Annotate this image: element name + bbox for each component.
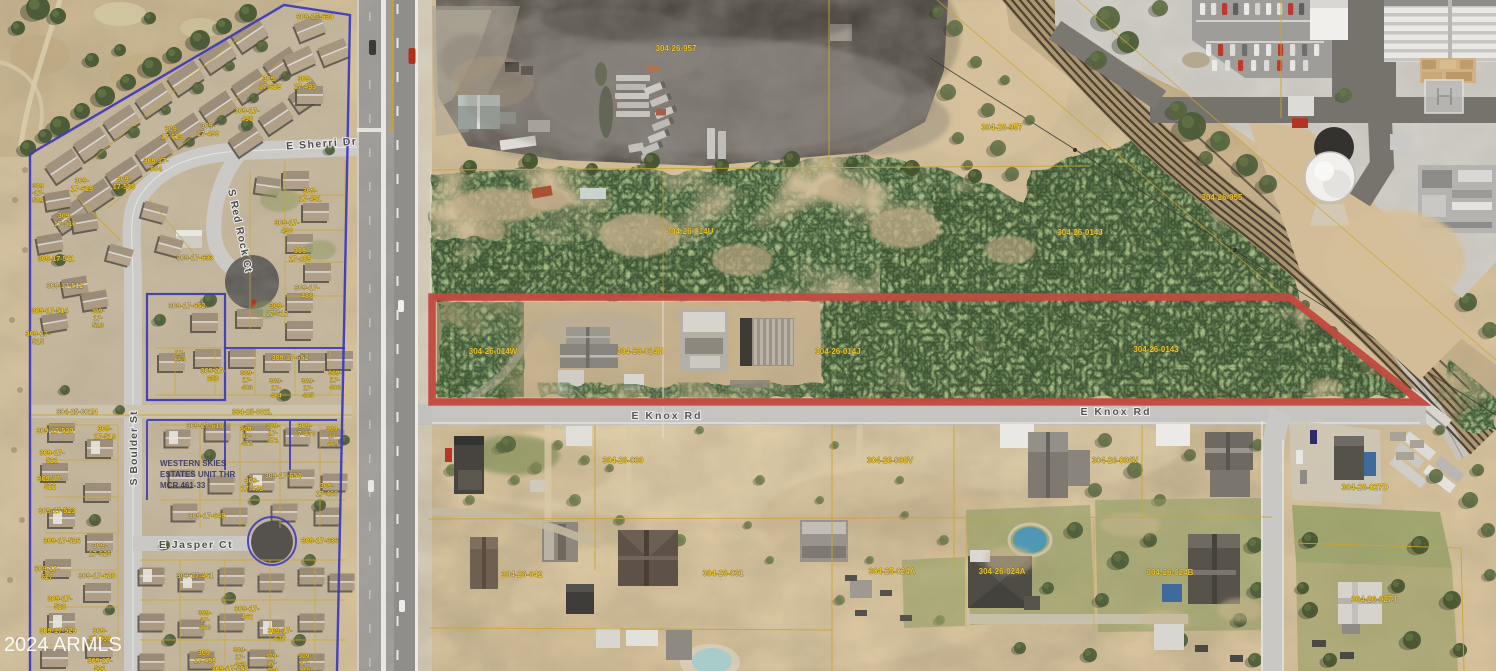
svg-text:304-25-024A: 304-25-024A [869,567,916,576]
svg-text:309-17-469: 309-17-469 [326,426,339,447]
svg-text:304-26-027J: 304-26-027J [1351,595,1396,604]
svg-text:304-26-014J: 304-26-014J [1057,228,1102,237]
svg-text:E Jasper Ct: E Jasper Ct [159,539,233,551]
svg-text:304-26-014J: 304-26-014J [815,347,860,356]
svg-text:304-26-055: 304-26-055 [1202,193,1243,202]
svg-text:309-17-633: 309-17-633 [177,253,214,262]
svg-text:304-26-014W: 304-26-014W [469,347,518,356]
svg-text:304-26-014H: 304-26-014H [617,347,664,356]
svg-text:304-25-001N: 304-25-001N [57,409,98,416]
svg-text:E Knox Rd: E Knox Rd [1080,406,1151,418]
svg-text:304-26-957: 304-26-957 [982,123,1023,132]
svg-text:309-17-526: 309-17-526 [44,536,81,545]
svg-text:309-17-483: 309-17-483 [240,370,253,391]
svg-text:304-26-027D: 304-26-027D [1342,483,1389,492]
svg-text:309-17-520: 309-17-520 [37,426,74,435]
svg-text:309-17-514: 309-17-514 [32,306,69,315]
svg-text:304-26-024B: 304-26-024B [1147,568,1194,577]
svg-text:309-17-460: 309-17-460 [198,610,211,631]
svg-text:309-17-636: 309-17-636 [302,536,339,545]
svg-text:309-17-471: 309-17-471 [266,423,279,444]
svg-text:304-26-008V: 304-26-008V [1092,456,1139,465]
svg-text:304-26-031: 304-26-031 [703,569,744,578]
svg-text:309-17-486: 309-17-486 [328,370,341,391]
svg-text:309-17-464: 309-17-464 [265,653,278,671]
svg-text:304-26-030: 304-26-030 [603,456,644,465]
svg-text:309-17-472: 309-17-472 [240,426,253,447]
svg-text:304-26-0143: 304-26-0143 [1133,345,1179,354]
svg-text:309-17-628: 309-17-628 [79,571,116,580]
svg-text:309-17-513: 309-17-513 [91,308,104,329]
svg-text:309-17-458: 309-17-458 [212,664,249,671]
svg-text:309-17-461: 309-17-461 [177,571,214,580]
svg-text:304-26-024A: 304-26-024A [979,567,1026,576]
svg-text:309-17-652: 309-17-652 [272,353,309,362]
svg-text:2024 ARMLS: 2024 ARMLS [4,634,122,656]
svg-text:309-17-512: 309-17-512 [47,281,84,290]
svg-text:304-26-014U: 304-26-014U [667,227,714,236]
svg-text:309-17-652: 309-17-652 [169,301,206,310]
svg-text:309-17-485: 309-17-485 [301,378,314,399]
svg-text:309-17-509: 309-17-509 [32,183,44,204]
svg-text:309-17-649: 309-17-649 [189,511,226,520]
svg-text:309-17-618: 309-17-618 [187,421,224,430]
svg-text:17-653: 17-653 [174,350,185,364]
svg-text:S Boulder St: S Boulder St [128,410,140,485]
svg-text:309-17-465: 309-17-465 [298,653,311,671]
svg-text:309-17-630: 309-17-630 [297,12,334,21]
svg-text:304-25-002L: 304-25-002L [232,409,273,416]
svg-text:309-17-484: 309-17-484 [269,378,282,399]
svg-text:309-17-523: 309-17-523 [39,506,76,515]
svg-text:309-17-511: 309-17-511 [38,254,74,263]
svg-text:304-26-957: 304-26-957 [656,44,697,53]
svg-text:309-17-654: 309-17-654 [265,471,302,480]
svg-text:E Knox Rd: E Knox Rd [631,410,702,422]
svg-text:304-26-642: 304-26-642 [502,570,543,579]
svg-text:304-26-008V: 304-26-008V [867,456,914,465]
